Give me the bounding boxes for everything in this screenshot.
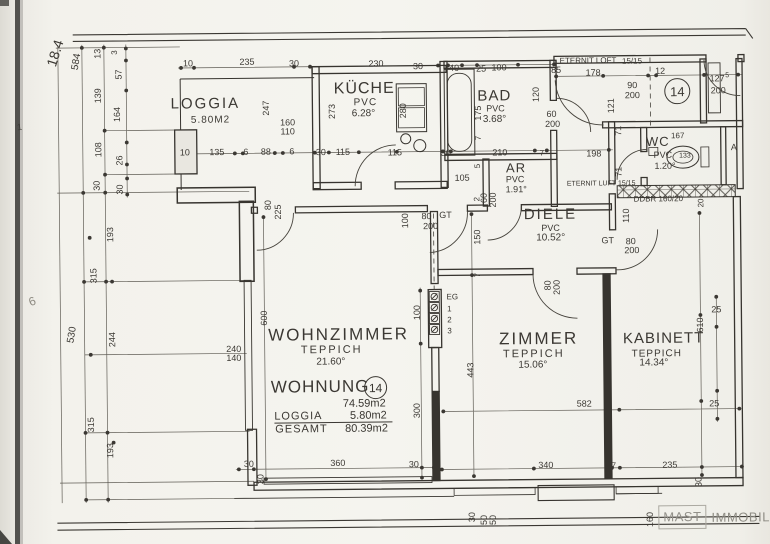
dimension-label: 30	[409, 460, 419, 469]
dimension-label: 235	[239, 58, 254, 67]
dimension-label: PVC	[506, 175, 525, 184]
dimension-label: ETERNIT LUFT 15/15	[567, 180, 636, 188]
dimension-label: 12	[655, 67, 665, 76]
dimension-label: 30	[244, 460, 254, 469]
dimension-label: 15/15	[622, 58, 642, 66]
dimension-label: 235	[662, 461, 677, 470]
dimension-label: GT	[601, 236, 614, 245]
dimension-label: 57	[115, 69, 124, 79]
dimension-label: 6.28°	[352, 109, 376, 119]
dimension-label: 108	[94, 142, 103, 157]
bathtub	[444, 69, 475, 155]
summary-unit-badge: 14	[364, 376, 387, 399]
logo-box-text: MAST	[658, 505, 706, 529]
dimension-label: 133	[679, 153, 691, 160]
dimension-label: TEPPICH	[301, 345, 363, 357]
dimension-label: 175	[474, 106, 483, 121]
dimension-label: 315	[89, 268, 98, 283]
dimension-label: GT	[439, 211, 452, 220]
dimension-label: 15.06°	[518, 360, 547, 370]
dimension-label: 340	[538, 461, 553, 470]
dimension-label: 30	[694, 477, 703, 487]
dimension-label: 2	[447, 316, 452, 324]
dimension-label: 280	[399, 103, 408, 118]
dimension-label: 3	[111, 50, 119, 55]
dimension-label: 26	[115, 155, 124, 165]
dimension-label: 40	[449, 64, 459, 73]
dimension-label: 200	[624, 246, 639, 255]
dimension-label: 5	[474, 164, 482, 169]
summary-unit-number: 14	[369, 381, 382, 395]
room-label-kabinett: KABINETT	[623, 330, 704, 346]
dimension-label: 80	[264, 200, 273, 210]
dimension-label: 443	[466, 363, 475, 378]
dimension-label: 115	[336, 148, 350, 157]
dimension-label: 60	[546, 110, 556, 119]
room-label-wohnzimmer: WOHNZIMMER	[268, 325, 409, 343]
dimension-label: 30	[93, 181, 102, 191]
dimension-label: 315	[87, 417, 96, 432]
dimension-label: 200	[545, 120, 560, 129]
summary-title: WOHNUNG	[271, 378, 370, 396]
dimension-label: 7	[475, 136, 483, 141]
dimension-label: 85	[551, 66, 561, 75]
logo-mast-immobilien: MAST IMMOBILIEN	[658, 504, 770, 529]
dimension-label: 244	[108, 332, 117, 347]
dimension-label: 105	[455, 174, 470, 183]
dimension-label: 3	[447, 327, 452, 335]
dimension-label: 71	[615, 167, 624, 177]
dimension-label: 200	[625, 91, 640, 100]
dimension-label: PVC	[486, 104, 505, 113]
dimension-label: 225	[274, 204, 283, 219]
dimension-label: 150	[473, 230, 482, 245]
room-label-diele: DIELE	[524, 207, 578, 223]
dimension-label: 110	[280, 127, 294, 136]
dimension-label: 139	[94, 88, 103, 103]
dimension-label: GESAMT	[275, 424, 328, 436]
dimension-label: 3.68°	[483, 115, 507, 125]
dimension-label: 582	[577, 400, 592, 409]
dimension-label: 6	[289, 147, 294, 156]
dimension-label: 210	[492, 148, 507, 157]
dimension-label: 200	[711, 86, 726, 95]
dimension-label: PVC	[654, 151, 673, 160]
dimension-label: 273	[328, 104, 337, 119]
unit-number-badge: 14	[664, 78, 690, 104]
dimension-label: DDBR 160/20	[634, 195, 683, 203]
dimension-label: 600	[260, 311, 269, 326]
dimension-label: 120	[532, 87, 541, 102]
scanned-floorplan-sheet: LOGGIA5.80M2KÜCHEPVC6.28°BADPVC3.68°ARPV…	[0, 0, 770, 544]
dimension-label: 1	[447, 305, 452, 313]
kitchen-sink	[401, 134, 411, 144]
dimension-label: 200	[553, 280, 562, 295]
dimension-label: 80.39m2	[345, 423, 388, 434]
dimension-label: 10.52°	[536, 233, 565, 243]
dimension-label: 115	[388, 148, 402, 157]
dimension-label: 160	[646, 512, 655, 527]
dimension-label: A	[731, 143, 737, 152]
dimension-label: 10	[180, 148, 190, 157]
dimension-label: 164	[113, 107, 122, 122]
dimension-label: 7	[612, 462, 617, 470]
unit-number: 14	[670, 84, 685, 99]
logo-name-text: IMMOBILIEN	[711, 509, 770, 525]
dimension-label: 71	[614, 126, 623, 136]
room-label-bad: BAD	[477, 88, 511, 103]
dimension-label: 200	[489, 192, 498, 207]
dimension-label: 247	[262, 101, 271, 116]
dimension-label: 360	[330, 459, 345, 468]
dimension-label: 30	[316, 148, 326, 157]
dimension-label: 90	[627, 81, 637, 90]
dimension-label: 121	[607, 98, 616, 113]
dimension-label: 10	[183, 59, 193, 68]
dimension-label: 200	[423, 222, 438, 231]
dimension-label: 20	[697, 198, 705, 207]
switch-strip	[429, 291, 439, 334]
dimension-label: 5.80m2	[350, 410, 387, 421]
dimension-label: 1.91°	[506, 185, 527, 194]
dimension-label: LOGGIA	[274, 411, 322, 422]
dimension-label: 178	[586, 68, 601, 77]
dimension-label: 30	[256, 474, 265, 484]
dimension-label: 14.34°	[639, 358, 668, 368]
dimension-label: 30	[413, 62, 423, 71]
dimension-label: 7	[474, 273, 482, 278]
dimension-label: 7	[540, 149, 545, 157]
dimension-label: 193	[106, 443, 115, 458]
walls	[174, 55, 748, 504]
dimension-label: 100	[491, 63, 506, 72]
dimension-label: 193	[106, 227, 115, 242]
dimension-label: 88	[261, 148, 271, 157]
dimension-label: 1.20°	[654, 162, 675, 171]
dimension-label: 198	[586, 149, 601, 158]
dimension-label: 25	[709, 399, 719, 408]
dimension-label: 25	[476, 65, 486, 74]
dimension-label: 110	[622, 208, 631, 222]
dimension-label: 167	[671, 132, 684, 140]
dimension-label: 100	[401, 213, 410, 228]
dimension-label: 230	[368, 60, 383, 69]
dimension-label: PVC	[354, 98, 378, 108]
dimension-label: 25	[711, 305, 721, 314]
room-label-wc: WC	[646, 135, 670, 148]
dimension-label: ETERNIT LOFT	[560, 57, 617, 66]
dimension-label: 80	[421, 212, 431, 221]
dimension-label: 5	[725, 72, 729, 79]
area-loggia: 5.80M2	[191, 115, 230, 125]
dimension-label: 30	[441, 149, 451, 158]
room-label-zimmer: ZIMMER	[499, 330, 578, 348]
dimension-label: 30	[289, 59, 299, 68]
dimension-label: 13	[93, 49, 102, 59]
dimension-label: 50	[489, 515, 498, 525]
dimension-label: 140	[226, 354, 241, 363]
dimension-label: 30	[468, 512, 477, 522]
dimension-label: 6	[243, 148, 248, 157]
dimension-label: EG	[446, 293, 458, 301]
dimension-label: 610	[696, 317, 705, 332]
room-label-kueche: KÜCHE	[334, 81, 395, 98]
dimension-label: 300	[413, 403, 422, 418]
room-label-ar: AR	[506, 161, 526, 174]
dimension-label: 21.60°	[316, 357, 345, 367]
summary-wohnung-area: 74.59m2	[343, 398, 386, 409]
dimension-label: 30	[116, 184, 125, 194]
room-label-loggia: LOGGIA	[171, 96, 241, 112]
dimension-label: 135	[209, 148, 224, 157]
dimension-label: 100	[413, 305, 422, 320]
dimension-label: 127	[710, 74, 725, 83]
scan-tilt-layer: LOGGIA5.80M2KÜCHEPVC6.28°BADPVC3.68°ARPV…	[0, 0, 770, 544]
